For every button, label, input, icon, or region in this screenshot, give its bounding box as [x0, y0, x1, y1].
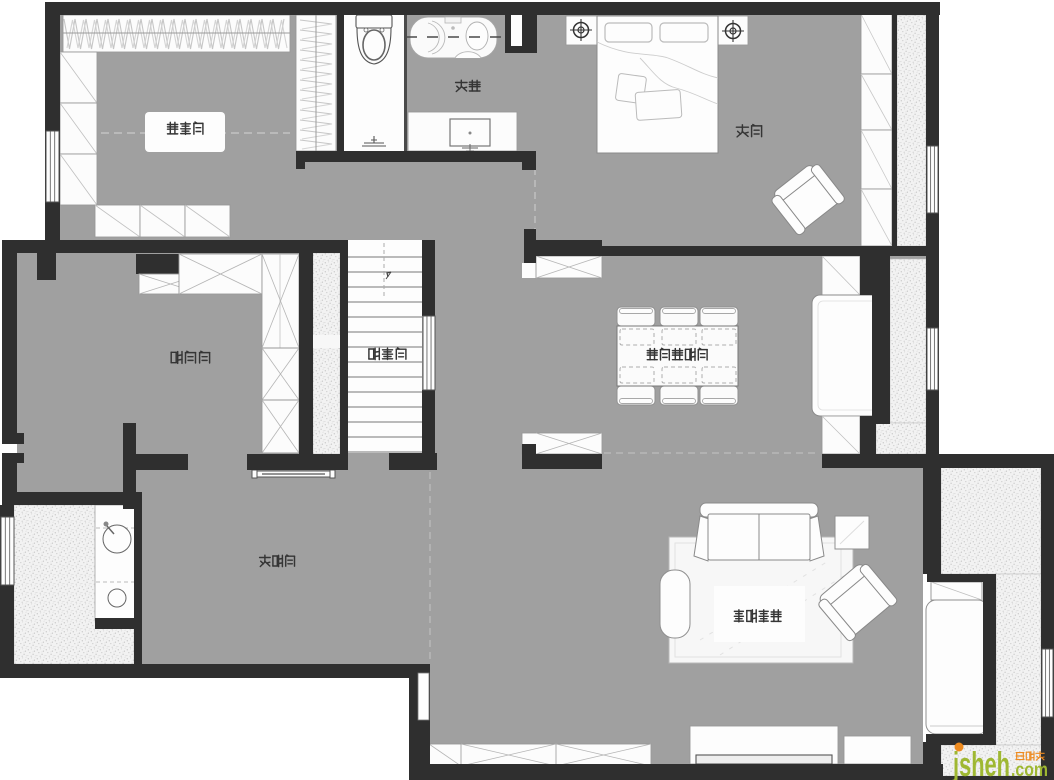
svg-text:jsheh: jsheh	[952, 746, 1010, 780]
svg-text:.com: .com	[1011, 760, 1048, 780]
